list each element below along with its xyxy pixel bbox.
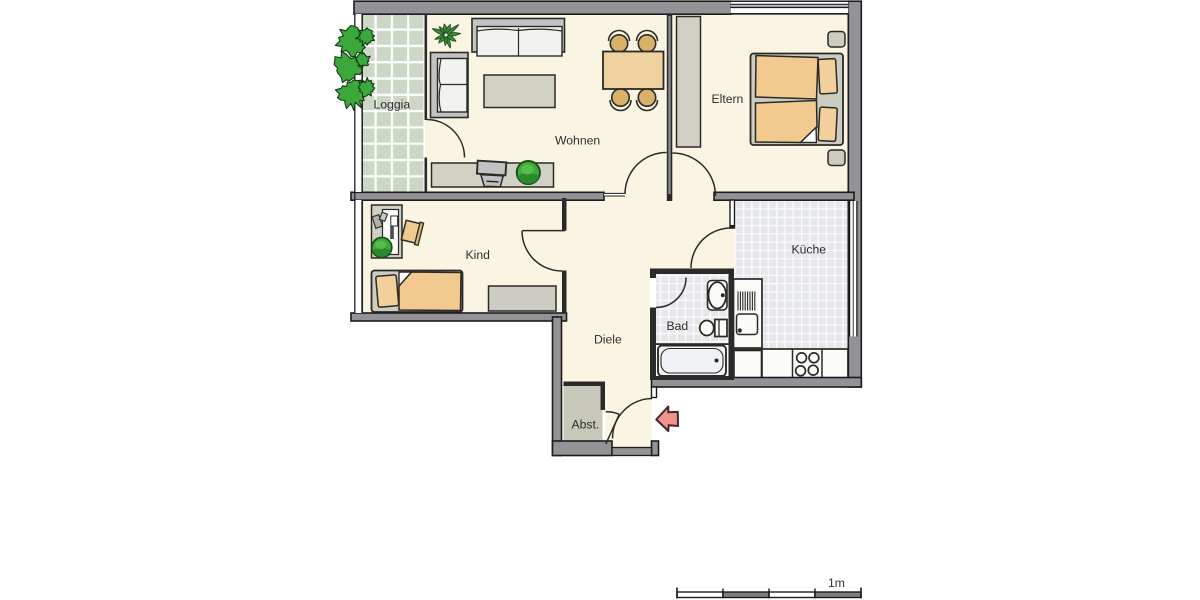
svg-text:Abst.: Abst. <box>572 418 600 432</box>
svg-text:Kind: Kind <box>466 248 490 262</box>
svg-text:Loggia: Loggia <box>374 98 411 112</box>
svg-text:Diele: Diele <box>594 333 622 347</box>
svg-text:Eltern: Eltern <box>712 92 744 106</box>
svg-text:Küche: Küche <box>792 243 827 257</box>
svg-text:Wohnen: Wohnen <box>555 134 600 148</box>
svg-text:Bad: Bad <box>667 319 689 333</box>
svg-text:1m: 1m <box>828 576 845 590</box>
